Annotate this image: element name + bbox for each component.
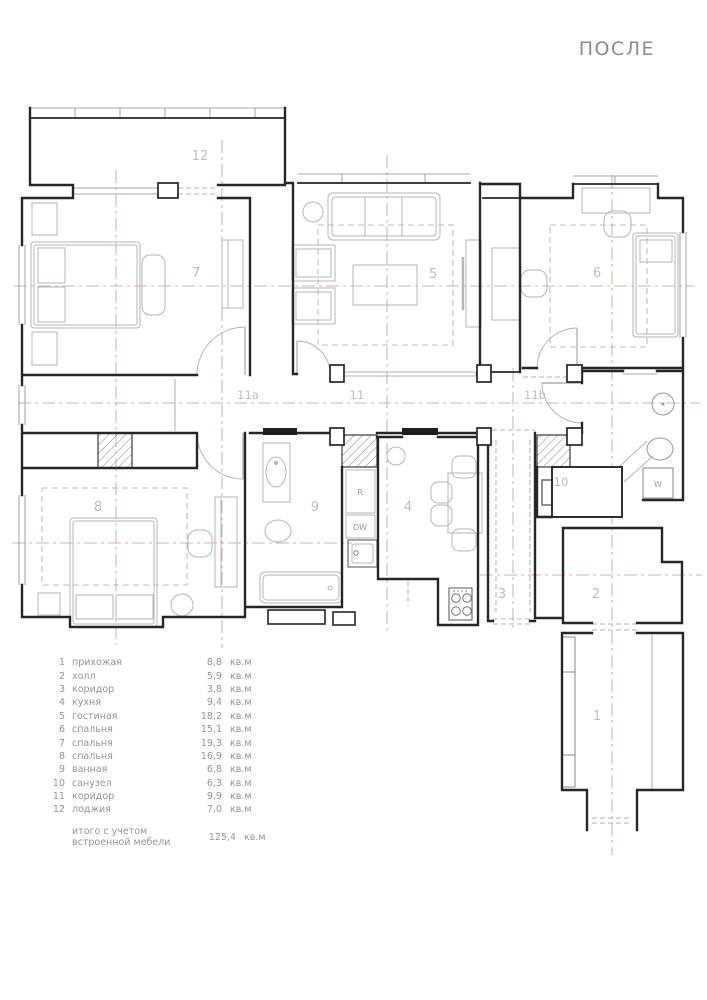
legend-num: 7 — [50, 738, 65, 749]
dishwasher-label: DW — [353, 523, 367, 532]
legend-unit: кв.м — [222, 671, 260, 682]
legend-area: 9,9 — [190, 791, 222, 802]
legend-area: 15,1 — [190, 724, 222, 735]
room-label-7: 7 — [192, 266, 200, 281]
legend-num: 6 — [50, 724, 65, 735]
legend-row: 3 коридор 3,8 кв.м — [50, 683, 260, 696]
legend: 1 прихожая 8,8 кв.м 2 холл 5,9 кв.м 3 ко… — [50, 656, 260, 848]
room-label-4: 4 — [404, 500, 412, 515]
legend-unit: кв.м — [222, 751, 260, 762]
legend-unit: кв.м — [222, 684, 260, 695]
legend-name: спальня — [65, 738, 190, 749]
legend-unit: кв.м — [222, 711, 260, 722]
legend-row: 12 лоджия 7,0 кв.м — [50, 803, 260, 816]
legend-num: 4 — [50, 697, 65, 708]
legend-area: 7,0 — [190, 804, 222, 815]
floor-plan-drawing: 12 7 5 6 11a 11 11b 8 9 4 10 3 2 1 R DW … — [0, 0, 707, 1000]
legend-unit: кв.м — [222, 791, 260, 802]
room-label-11b: 11b — [524, 388, 546, 402]
legend-num: 10 — [50, 778, 65, 789]
legend-area: 8,8 — [190, 657, 222, 668]
legend-area: 5,9 — [190, 671, 222, 682]
legend-row: 7 спальня 19,3 кв.м — [50, 736, 260, 749]
legend-row: 8 спальня 16,9 кв.м — [50, 750, 260, 763]
legend-area: 6,3 — [190, 778, 222, 789]
room-label-3: 3 — [498, 587, 506, 602]
legend-row: 9 ванная 6,8 кв.м — [50, 763, 260, 776]
legend-num: 2 — [50, 671, 65, 682]
room-label-10: 10 — [554, 475, 569, 489]
legend-name: прихожая — [65, 657, 190, 668]
legend-name: ванная — [65, 764, 190, 775]
legend-row: 5 гостиная 18,2 кв.м — [50, 710, 260, 723]
legend-num: 5 — [50, 711, 65, 722]
legend-area: 18,2 — [190, 711, 222, 722]
legend-area: 6,8 — [190, 764, 222, 775]
room-label-2: 2 — [592, 587, 600, 602]
legend-total-label: итого с учетом встроенной мебели — [50, 826, 204, 849]
legend-num: 12 — [50, 804, 65, 815]
legend-name: спальня — [65, 751, 190, 762]
room-label-8: 8 — [94, 500, 102, 515]
room-label-5: 5 — [429, 267, 437, 282]
fridge-label: R — [357, 488, 363, 497]
legend-num: 1 — [50, 657, 65, 668]
washer-label: W — [654, 480, 662, 489]
legend-row: 11 коридор 9,9 кв.м — [50, 790, 260, 803]
legend-num: 11 — [50, 791, 65, 802]
legend-num: 8 — [50, 751, 65, 762]
legend-unit: кв.м — [222, 657, 260, 668]
room-label-11: 11 — [350, 388, 365, 402]
legend-unit: кв.м — [222, 764, 260, 775]
room-label-6: 6 — [593, 266, 601, 281]
room-label-11a: 11a — [237, 388, 259, 402]
zone-dashes — [42, 225, 647, 585]
legend-area: 9,4 — [190, 697, 222, 708]
legend-unit: кв.м — [222, 778, 260, 789]
sliding-doors — [263, 428, 438, 435]
legend-unit: кв.м — [222, 804, 260, 815]
floor-plan-page: ПОСЛЕ — [0, 0, 707, 1000]
legend-area: 16,9 — [190, 751, 222, 762]
legend-name: холл — [65, 671, 190, 682]
legend-name: спальня — [65, 724, 190, 735]
legend-row: 10 санузел 6,3 кв.м — [50, 777, 260, 790]
legend-area: 3,8 — [190, 684, 222, 695]
legend-row: 1 прихожая 8,8 кв.м — [50, 656, 260, 669]
legend-row: 4 кухня 9,4 кв.м — [50, 696, 260, 709]
legend-name: коридор — [65, 684, 190, 695]
legend-total-row: итого с учетом встроенной мебели 125,4 к… — [50, 826, 260, 849]
legend-name: кухня — [65, 697, 190, 708]
legend-area: 19,3 — [190, 738, 222, 749]
legend-row: 2 холл 5,9 кв.м — [50, 669, 260, 682]
legend-unit: кв.м — [222, 738, 260, 749]
legend-name: лоджия — [65, 804, 190, 815]
room-label-1: 1 — [593, 709, 601, 724]
legend-total-area: 125,4 — [204, 832, 236, 843]
legend-total-unit: кв.м — [236, 832, 274, 843]
legend-name: санузел — [65, 778, 190, 789]
legend-num: 3 — [50, 684, 65, 695]
legend-unit: кв.м — [222, 697, 260, 708]
legend-unit: кв.м — [222, 724, 260, 735]
room-label-12: 12 — [192, 149, 209, 164]
legend-num: 9 — [50, 764, 65, 775]
legend-name: гостиная — [65, 711, 190, 722]
legend-row: 6 спальня 15,1 кв.м — [50, 723, 260, 736]
room-label-9: 9 — [311, 500, 319, 515]
door-swings — [197, 327, 653, 482]
legend-name: коридор — [65, 791, 190, 802]
